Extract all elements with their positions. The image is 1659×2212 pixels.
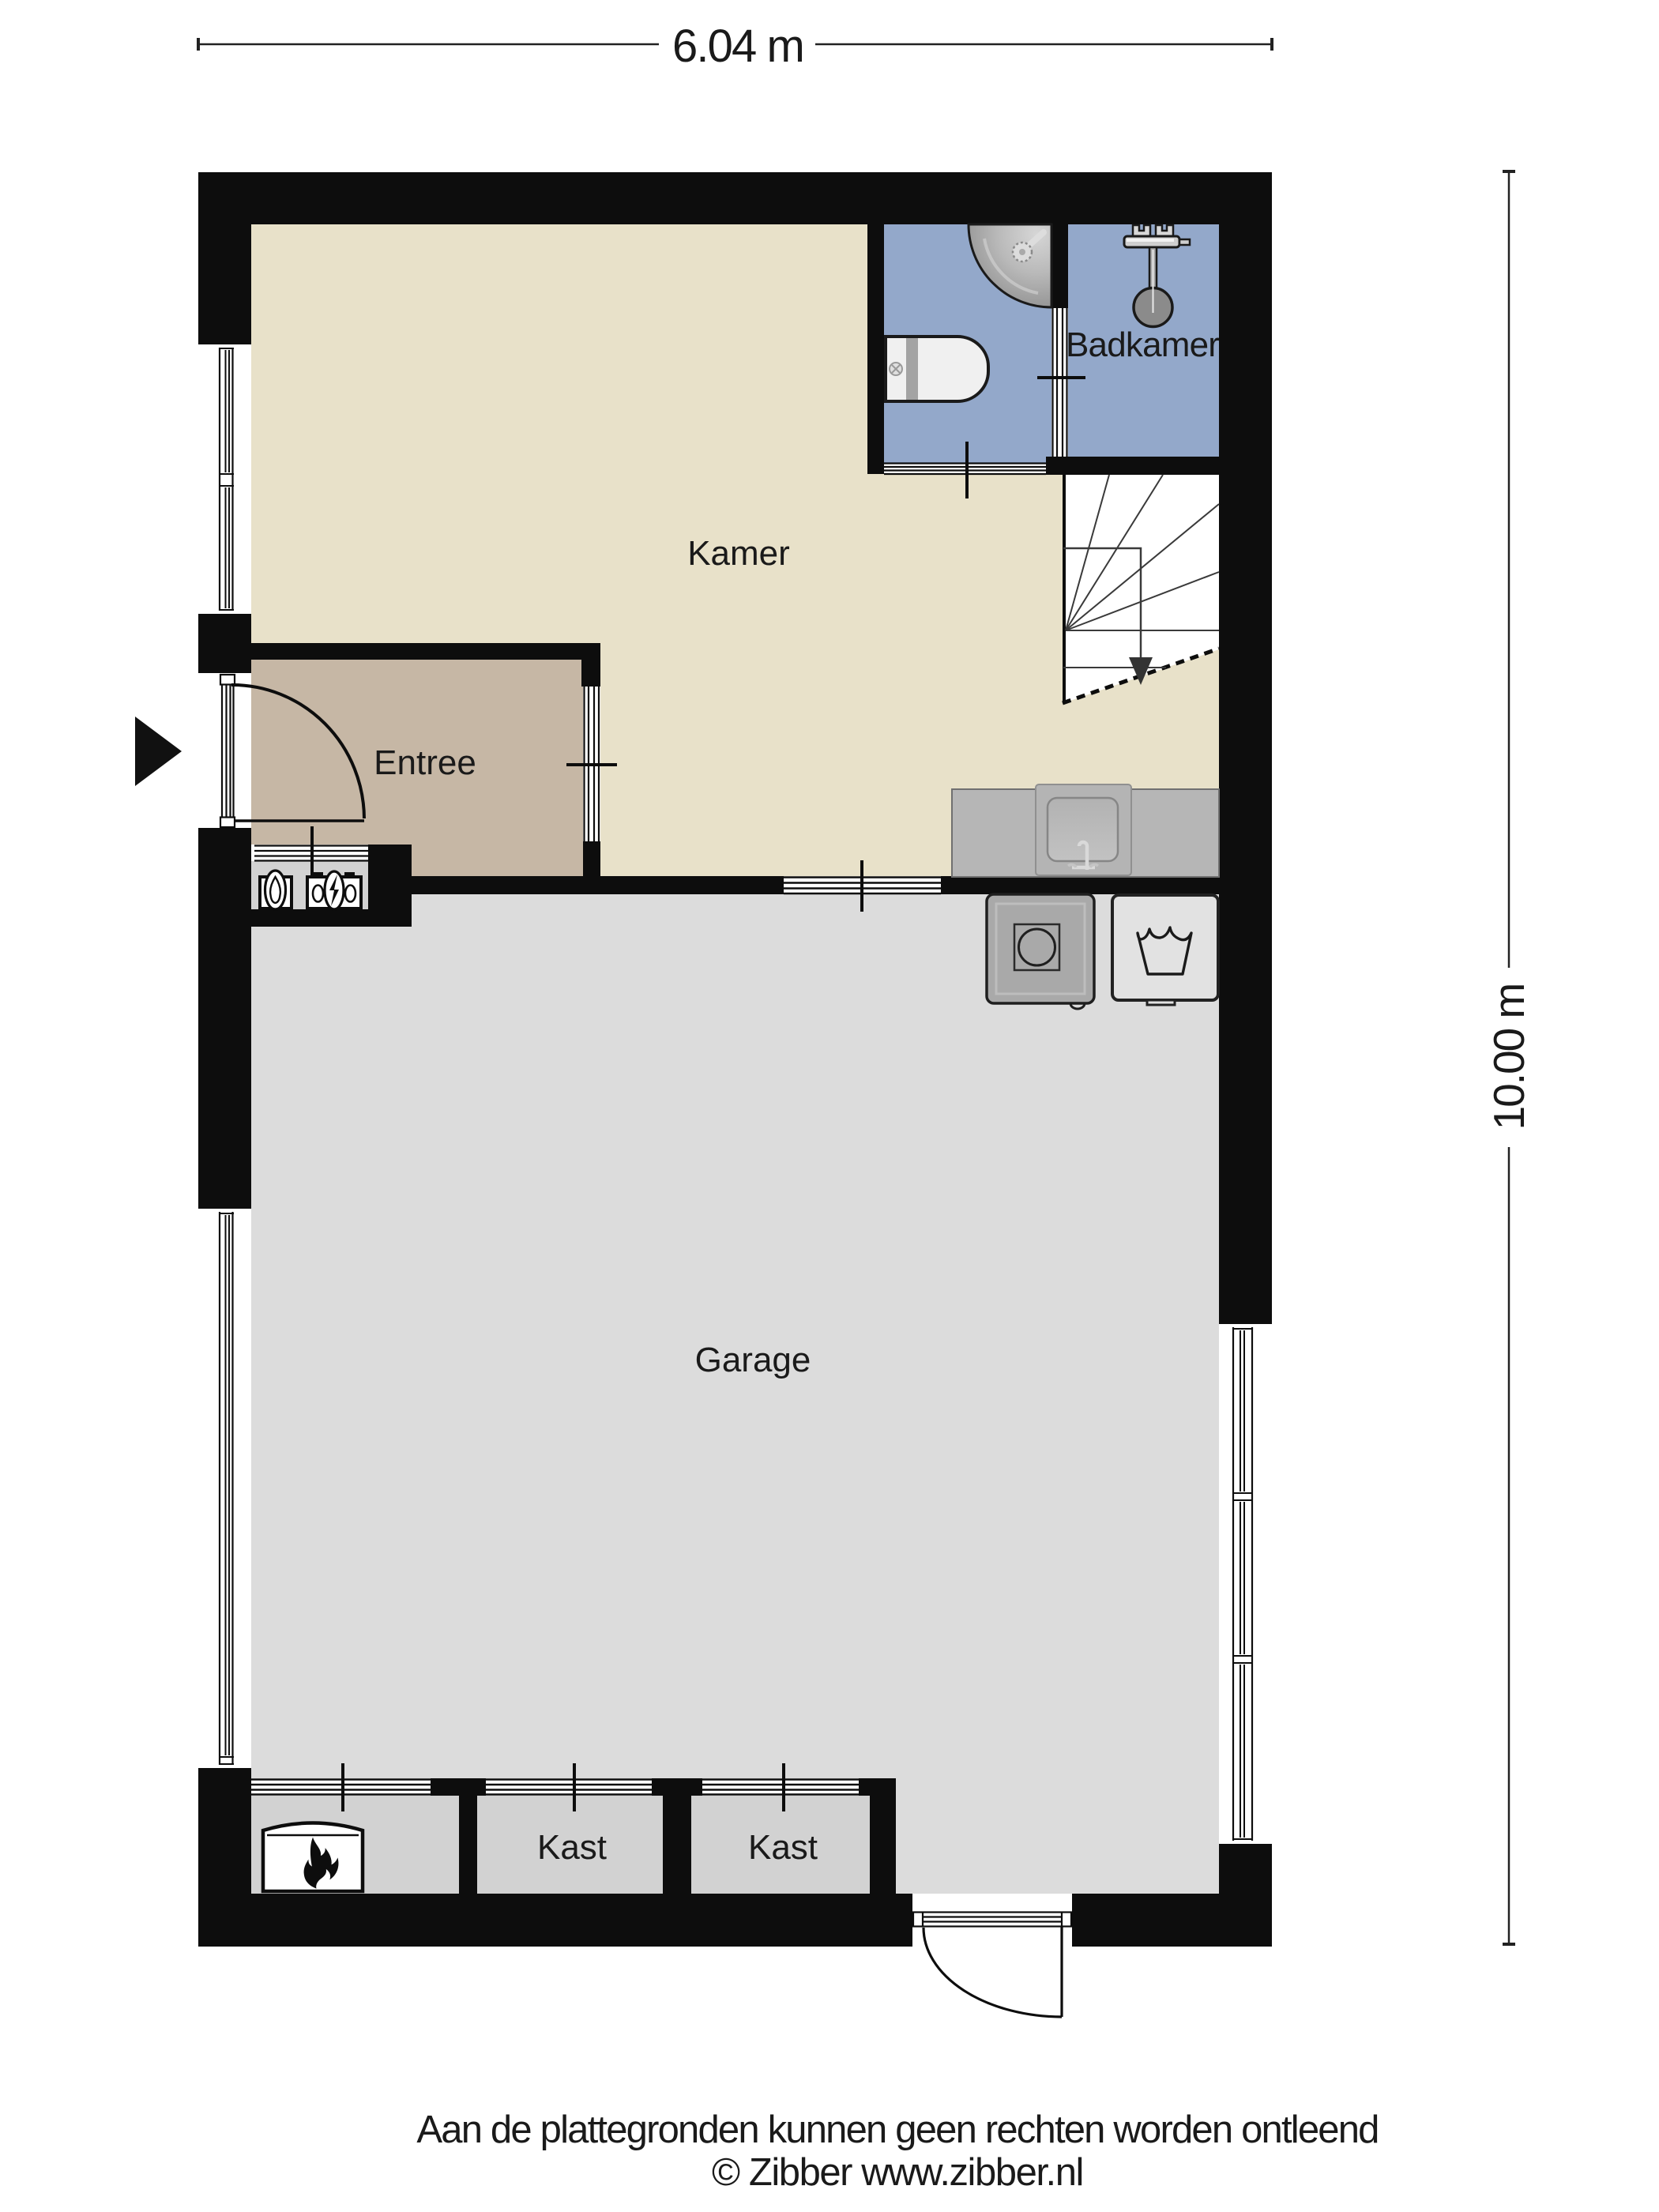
svg-text:Badkamer: Badkamer bbox=[1066, 325, 1219, 364]
svg-text:Kamer: Kamer bbox=[687, 534, 790, 573]
svg-text:Kast: Kast bbox=[748, 1828, 818, 1867]
svg-text:Aan de plattegronden kunnen ge: Aan de plattegronden kunnen geen rechten… bbox=[416, 2109, 1378, 2151]
svg-text:Garage: Garage bbox=[695, 1341, 811, 1379]
svg-text:6.04 m: 6.04 m bbox=[672, 21, 803, 72]
svg-text:Entree: Entree bbox=[374, 743, 476, 782]
svg-text:© Zibber www.zibber.nl: © Zibber www.zibber.nl bbox=[712, 2151, 1083, 2194]
svg-text:Kast: Kast bbox=[537, 1828, 607, 1867]
svg-text:10.00 m: 10.00 m bbox=[1484, 984, 1533, 1130]
